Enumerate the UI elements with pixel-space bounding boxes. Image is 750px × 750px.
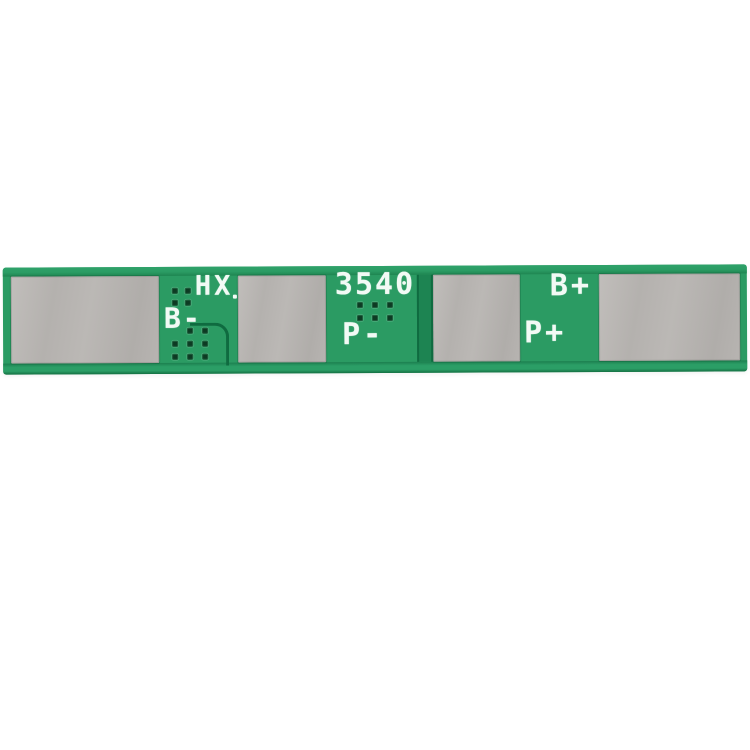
via-hole	[387, 315, 393, 321]
via-hole	[202, 341, 208, 347]
silkscreen-model-number: 3540	[335, 270, 415, 300]
pcb-board: HX B- 3540 P- B+ P+	[3, 264, 747, 374]
silkscreen-p-minus: P-	[342, 320, 384, 350]
silkscreen-p-plus: P+	[524, 318, 566, 348]
via-hole	[202, 354, 208, 360]
via-hole	[172, 341, 178, 347]
via-hole	[372, 302, 378, 308]
via-hole	[172, 288, 178, 294]
via-hole	[187, 341, 193, 347]
via-hole	[172, 354, 178, 360]
product-photo-background: HX B- 3540 P- B+ P+	[0, 0, 750, 750]
silkscreen-dot	[233, 295, 237, 299]
silkscreen-b-minus: B-	[164, 305, 202, 333]
silkscreen-chip-mark: HX	[195, 273, 234, 300]
via-hole	[357, 302, 363, 308]
via-hole	[387, 302, 393, 308]
via-hole	[185, 288, 191, 294]
via-hole	[202, 328, 208, 334]
silkscreen-b-plus: B+	[550, 271, 592, 301]
via-hole	[187, 354, 193, 360]
